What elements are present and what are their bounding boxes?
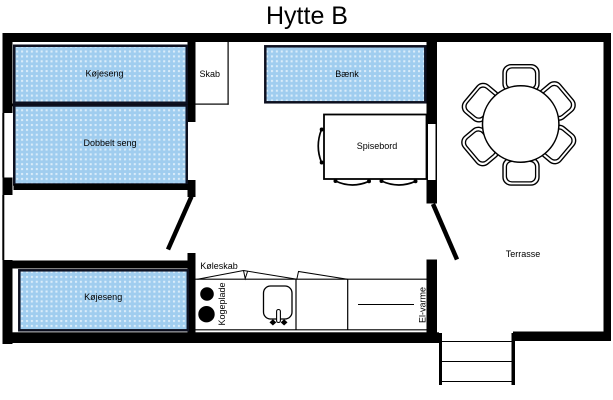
svg-text:El-varme: El-varme xyxy=(417,287,427,323)
svg-text:Hytte B: Hytte B xyxy=(266,2,348,30)
svg-text:Køjeseng: Køjeseng xyxy=(84,292,122,302)
svg-text:Kogeplade: Kogeplade xyxy=(217,282,227,325)
svg-text:Dobbelt seng: Dobbelt seng xyxy=(83,138,136,148)
svg-text:Køleskab: Køleskab xyxy=(200,261,238,271)
svg-text:Terrasse: Terrasse xyxy=(506,249,541,259)
svg-text:Bænk: Bænk xyxy=(335,69,359,79)
svg-text:Køjeseng: Køjeseng xyxy=(85,69,123,79)
svg-text:Skab: Skab xyxy=(199,69,220,79)
svg-text:Spisebord: Spisebord xyxy=(357,141,398,151)
